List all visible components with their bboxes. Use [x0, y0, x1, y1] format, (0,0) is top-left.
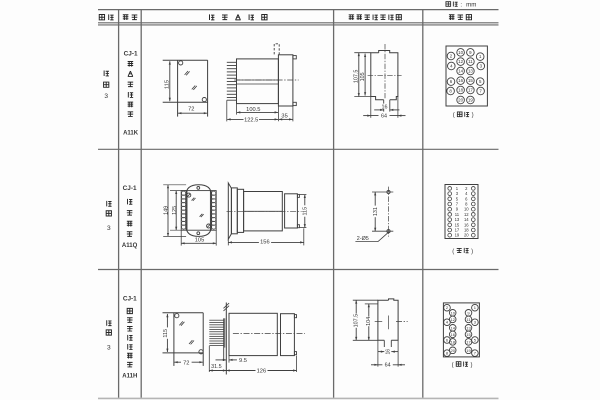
svg-text:(: (	[452, 249, 454, 255]
svg-text:): )	[472, 113, 474, 119]
svg-text:20: 20	[464, 233, 469, 238]
svg-text:7: 7	[479, 89, 482, 94]
svg-text:7: 7	[474, 351, 477, 356]
svg-text:12: 12	[450, 317, 455, 322]
svg-text:122.5: 122.5	[244, 118, 258, 124]
svg-text:11: 11	[466, 317, 471, 322]
svg-text:18: 18	[450, 339, 455, 344]
svg-text:CJ-1: CJ-1	[124, 51, 138, 58]
svg-text:14: 14	[450, 325, 455, 330]
svg-text:2: 2	[450, 54, 453, 59]
svg-text:105: 105	[360, 72, 366, 81]
svg-text:31.5: 31.5	[211, 364, 222, 370]
svg-text:13: 13	[468, 69, 473, 74]
svg-text:14: 14	[458, 69, 463, 74]
svg-text:(: (	[453, 113, 455, 119]
svg-text:100.5: 100.5	[246, 107, 260, 113]
svg-text:A11K: A11K	[123, 130, 139, 136]
svg-text:12: 12	[458, 59, 463, 64]
svg-text:17: 17	[466, 339, 471, 344]
svg-text:10: 10	[458, 50, 463, 55]
svg-text:16: 16	[450, 332, 455, 337]
svg-text:115: 115	[163, 329, 169, 338]
svg-text:): )	[471, 249, 473, 255]
svg-text:3: 3	[474, 320, 477, 325]
svg-text:CJ-1: CJ-1	[123, 296, 137, 303]
svg-text:104: 104	[366, 317, 372, 326]
svg-text:131: 131	[373, 207, 379, 216]
svg-text:9.5: 9.5	[239, 358, 247, 364]
svg-text:115: 115	[164, 80, 170, 89]
svg-text:5: 5	[474, 338, 477, 343]
svg-text:35: 35	[281, 113, 287, 119]
svg-text:64: 64	[385, 363, 391, 369]
svg-text:8: 8	[446, 351, 449, 356]
svg-text:6: 6	[446, 338, 449, 343]
svg-text:20: 20	[458, 98, 463, 103]
svg-text:15: 15	[466, 332, 471, 337]
svg-text:A11Q: A11Q	[122, 243, 138, 249]
svg-text:1: 1	[474, 305, 477, 310]
svg-text:11: 11	[468, 59, 473, 64]
svg-text:125: 125	[172, 206, 178, 215]
svg-text:126: 126	[257, 368, 267, 374]
svg-text:149: 149	[163, 206, 169, 215]
svg-text:9: 9	[467, 310, 470, 315]
svg-text:3: 3	[104, 93, 108, 100]
svg-text:5: 5	[479, 79, 482, 84]
svg-text:13: 13	[466, 325, 471, 330]
svg-text:9: 9	[469, 50, 472, 55]
svg-text:17: 17	[468, 88, 473, 93]
svg-text:16: 16	[382, 104, 388, 110]
svg-text:15: 15	[468, 78, 473, 83]
svg-text:4: 4	[446, 320, 449, 325]
svg-text:A11H: A11H	[122, 373, 137, 379]
svg-text:19: 19	[455, 233, 460, 238]
svg-text:): )	[471, 362, 473, 368]
svg-text:4: 4	[450, 64, 453, 69]
svg-text::: :	[460, 1, 462, 8]
svg-text:3: 3	[107, 344, 111, 351]
svg-text:CJ-1: CJ-1	[123, 185, 137, 192]
svg-text:115: 115	[303, 207, 309, 216]
svg-text:20: 20	[450, 348, 455, 353]
svg-text:64: 64	[381, 113, 387, 119]
svg-text:3: 3	[107, 225, 111, 232]
svg-text:16: 16	[386, 349, 392, 355]
svg-text:72: 72	[188, 107, 194, 113]
svg-text:16: 16	[458, 78, 463, 83]
svg-text:1: 1	[479, 54, 482, 59]
svg-text:18: 18	[458, 88, 463, 93]
svg-text:19: 19	[468, 98, 473, 103]
svg-text:156: 156	[260, 240, 270, 246]
svg-text:8: 8	[449, 89, 452, 94]
svg-text:mm: mm	[466, 1, 476, 8]
svg-text:2: 2	[446, 305, 449, 310]
svg-text:10: 10	[450, 310, 455, 315]
svg-text:(: (	[452, 362, 454, 368]
svg-text:6: 6	[450, 79, 453, 84]
svg-text:72: 72	[183, 360, 189, 366]
svg-text:105: 105	[195, 238, 205, 244]
svg-text:107.5: 107.5	[353, 314, 359, 328]
svg-text:3: 3	[480, 64, 483, 69]
svg-text:107.5: 107.5	[354, 70, 360, 84]
svg-text:19: 19	[466, 348, 471, 353]
